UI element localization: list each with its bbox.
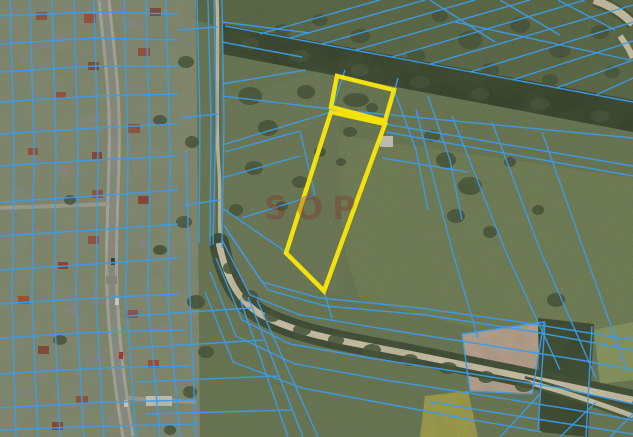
watermark-text: SOP (264, 189, 365, 227)
map-canvas[interactable]: SOP (0, 0, 633, 437)
